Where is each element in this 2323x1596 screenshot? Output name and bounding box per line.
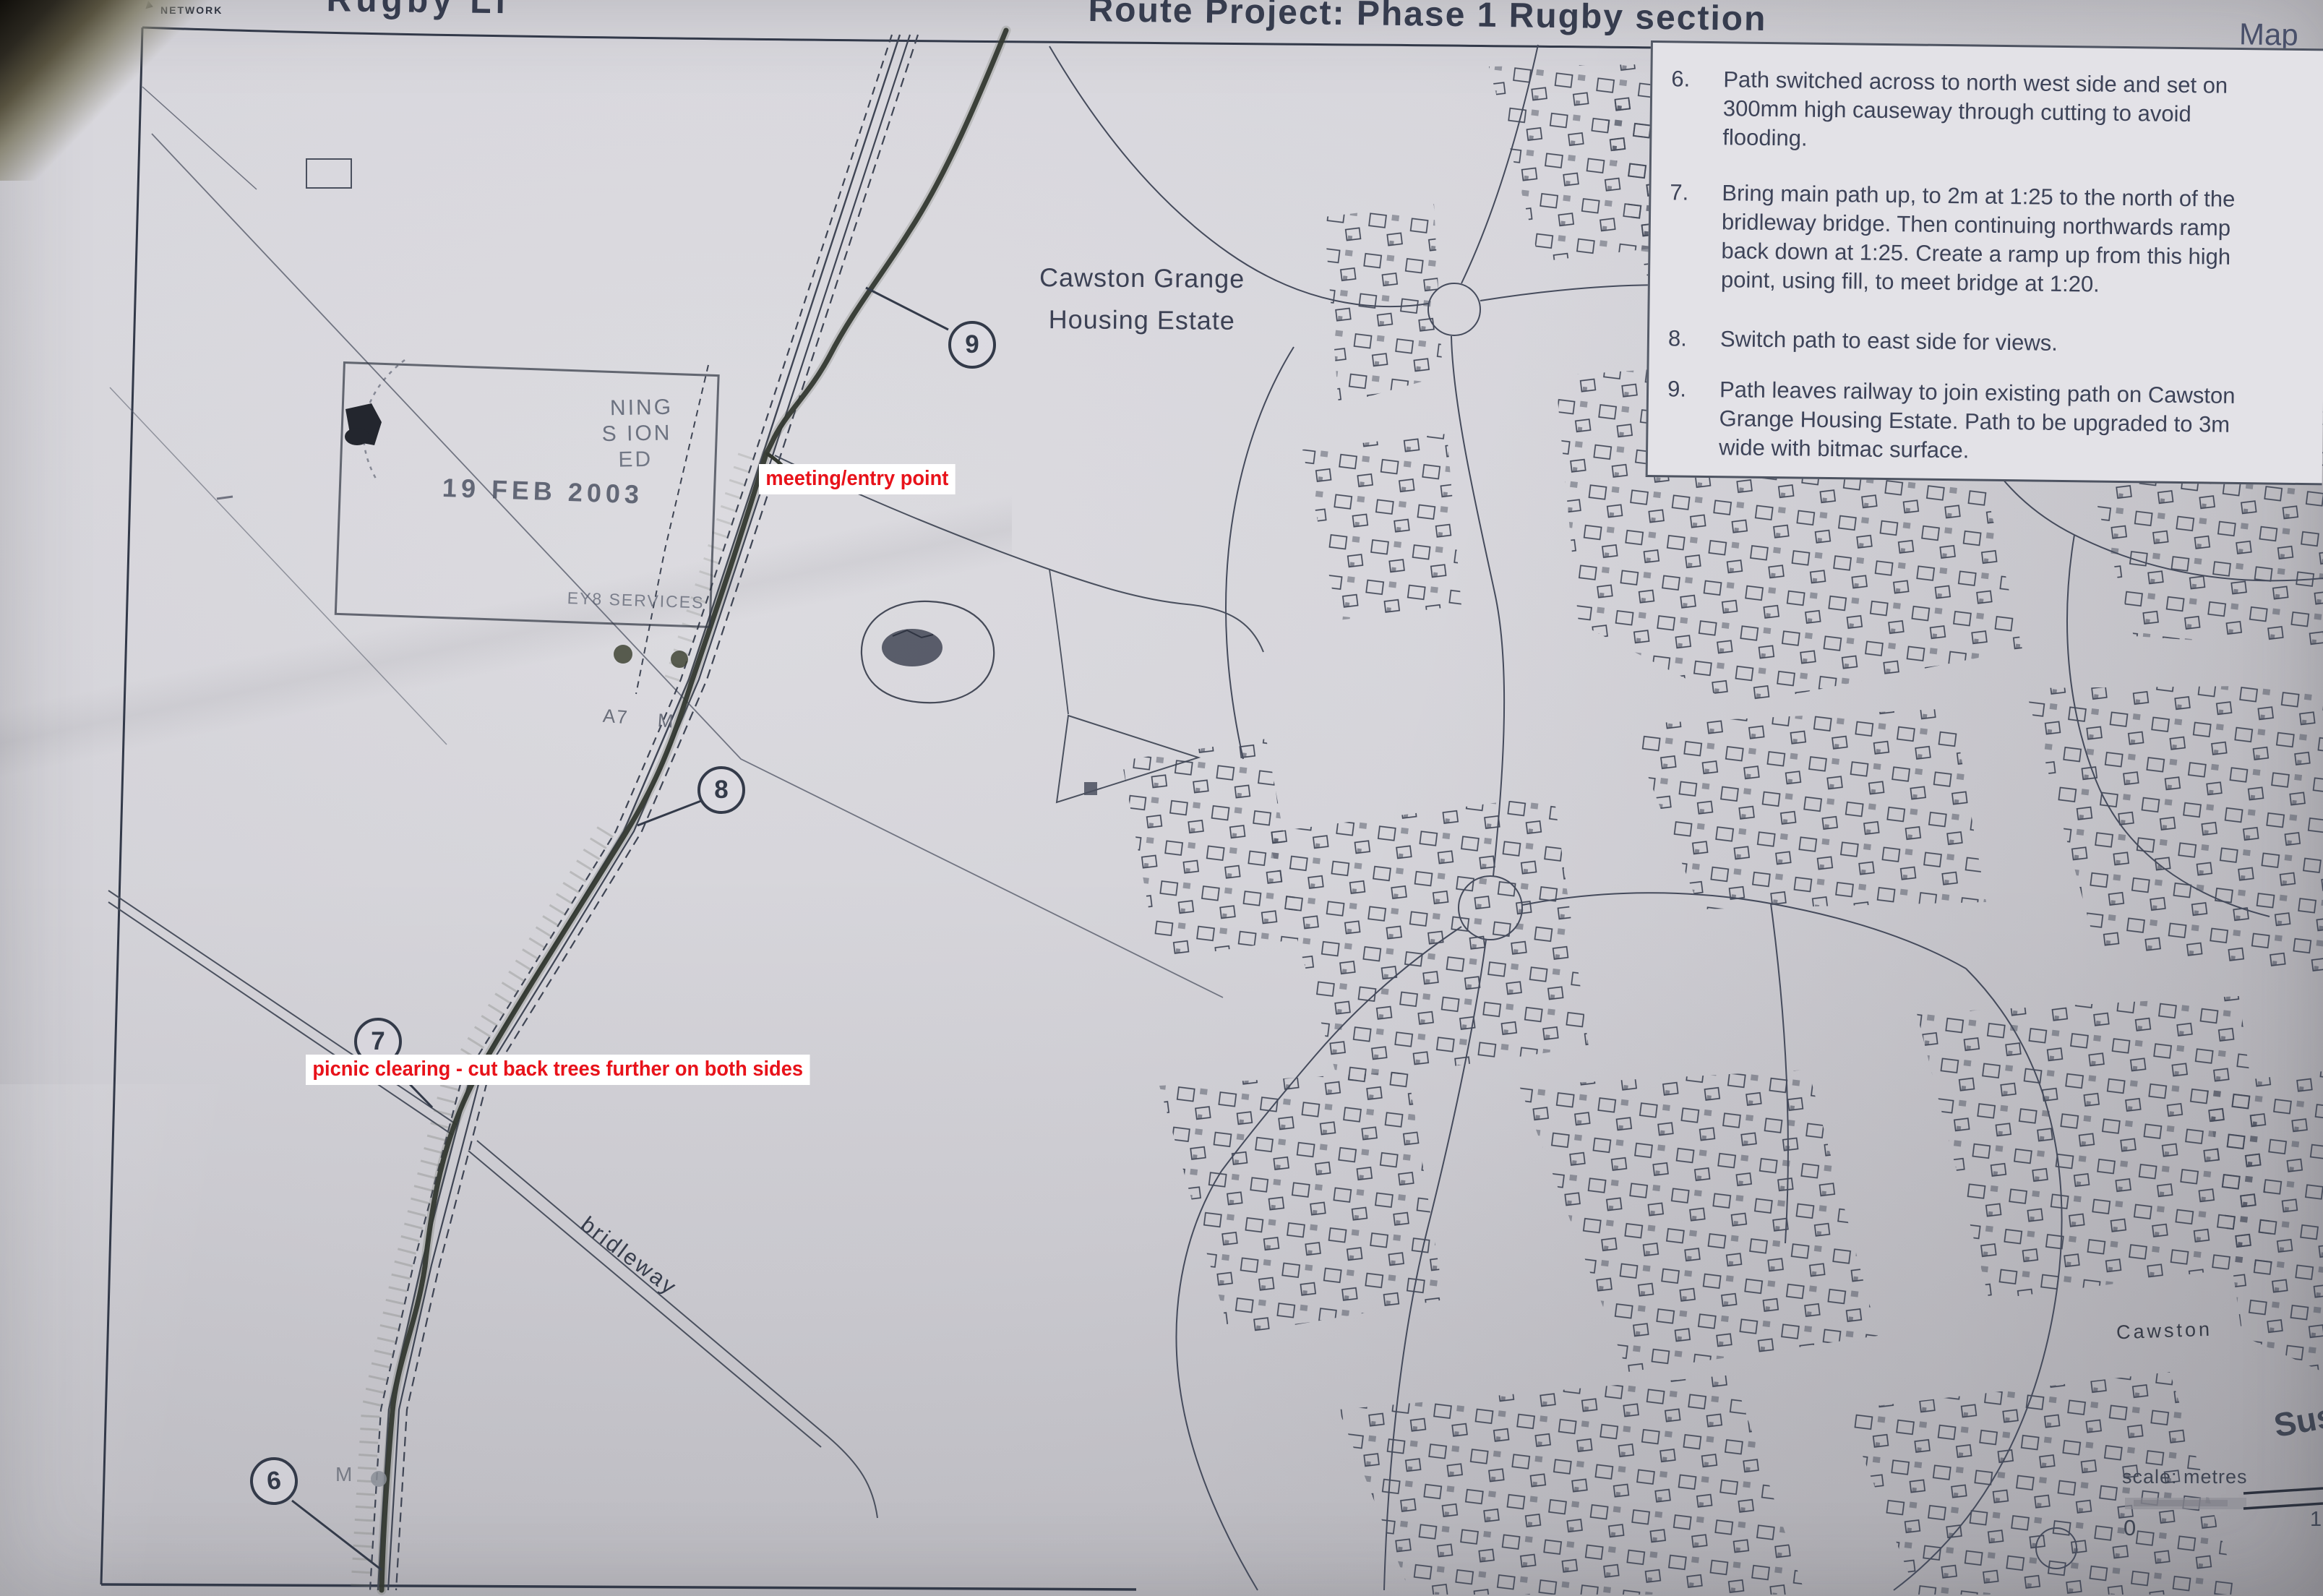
pond-copse — [862, 601, 994, 703]
document-title-fragment: Rugby Li — [326, 0, 510, 22]
scale-zero-tick: 0 — [2124, 1515, 2136, 1541]
estate-label-line1: Cawston Grange — [1021, 262, 1263, 294]
note-item-9: 9. Path leaves railway to join existing … — [1665, 374, 2323, 469]
annotation-picnic-clearing: picnic clearing - cut back trees further… — [306, 1055, 810, 1085]
note-item-7: 7. Bring main path up, to 2m at 1:25 to … — [1667, 178, 2323, 301]
pencil-note-m: M — [657, 709, 676, 733]
estate-label-line2: Housing Estate — [1021, 304, 1263, 336]
note-number: 6. — [1671, 64, 1690, 93]
photo-of-route-map: { "header": { "network": "NETWORK", "tit… — [0, 0, 2323, 1596]
stamp-text-fragment: ED — [618, 447, 653, 473]
stamp-text-fragment: NING — [610, 395, 674, 421]
note-text: Bring main path up, to 2m at 1:25 to the… — [1721, 179, 2323, 303]
estate-label: Cawston Grange Housing Estate — [1021, 262, 1264, 336]
note-number: 9. — [1667, 374, 1686, 403]
pencil-note-m: M — [335, 1463, 353, 1486]
notes-panel: 6. Path switched across to north west si… — [1646, 40, 2323, 485]
stamp-services-text: EY8 SERVICES — [567, 588, 705, 613]
note-item-8: 8. Switch path to east side for views. — [1667, 324, 2323, 361]
cawston-label: Cawston — [2116, 1318, 2212, 1344]
received-stamp-box: NING S ION ED 19 FEB 2003 EY8 SERVICES — [335, 361, 720, 628]
pencil-note-a7: A7 — [602, 705, 630, 729]
bridleway-track — [108, 891, 877, 1518]
photo-corner-shadow — [0, 0, 231, 181]
note-number: 7. — [1670, 178, 1688, 207]
note-item-6: 6. Path switched across to north west si… — [1669, 64, 2323, 159]
note-text: Path leaves railway to join existing pat… — [1719, 375, 2323, 471]
proposed-route-line — [382, 30, 1006, 1590]
stamp-date: 19 FEB 2003 — [442, 473, 643, 510]
note-text: Path switched across to north west side … — [1722, 65, 2323, 160]
annotation-meeting-entry-point: meeting/entry point — [759, 464, 956, 494]
small-building — [306, 159, 351, 188]
note-text: Switch path to east side for views. — [1720, 325, 2323, 362]
note-number: 8. — [1668, 324, 1687, 353]
stamp-text-fragment: S ION — [601, 421, 671, 447]
scale-label: scale: metres — [2122, 1466, 2248, 1488]
route-marker-8: 8 — [697, 766, 745, 814]
route-marker-9: 9 — [948, 321, 996, 369]
scale-right-tick: 1 — [2310, 1508, 2322, 1532]
